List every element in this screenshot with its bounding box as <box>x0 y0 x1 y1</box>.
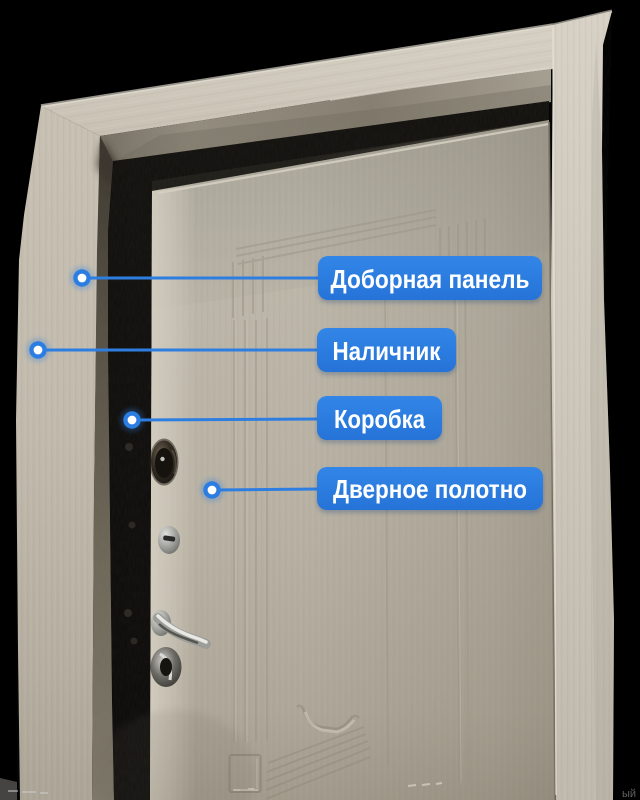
svg-text:Наличник: Наличник <box>333 336 442 366</box>
svg-text:Коробка: Коробка <box>334 404 425 434</box>
svg-text:Дверное полотно: Дверное полотно <box>333 474 527 504</box>
svg-text:ый: ый <box>622 788 636 800</box>
svg-text:Доборная панель: Доборная панель <box>331 264 530 294</box>
